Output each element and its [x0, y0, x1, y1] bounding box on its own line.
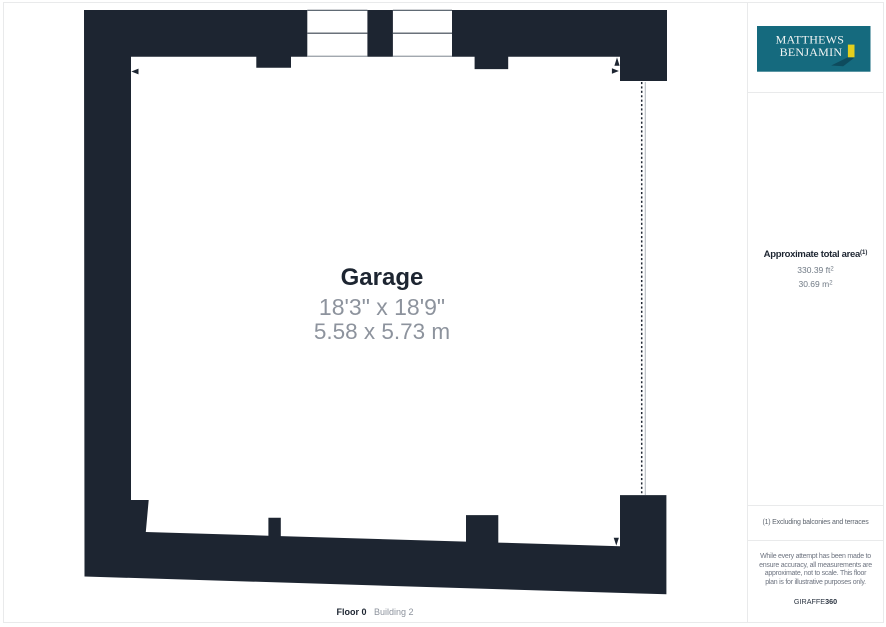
svg-text:BENJAMIN: BENJAMIN — [780, 45, 843, 59]
